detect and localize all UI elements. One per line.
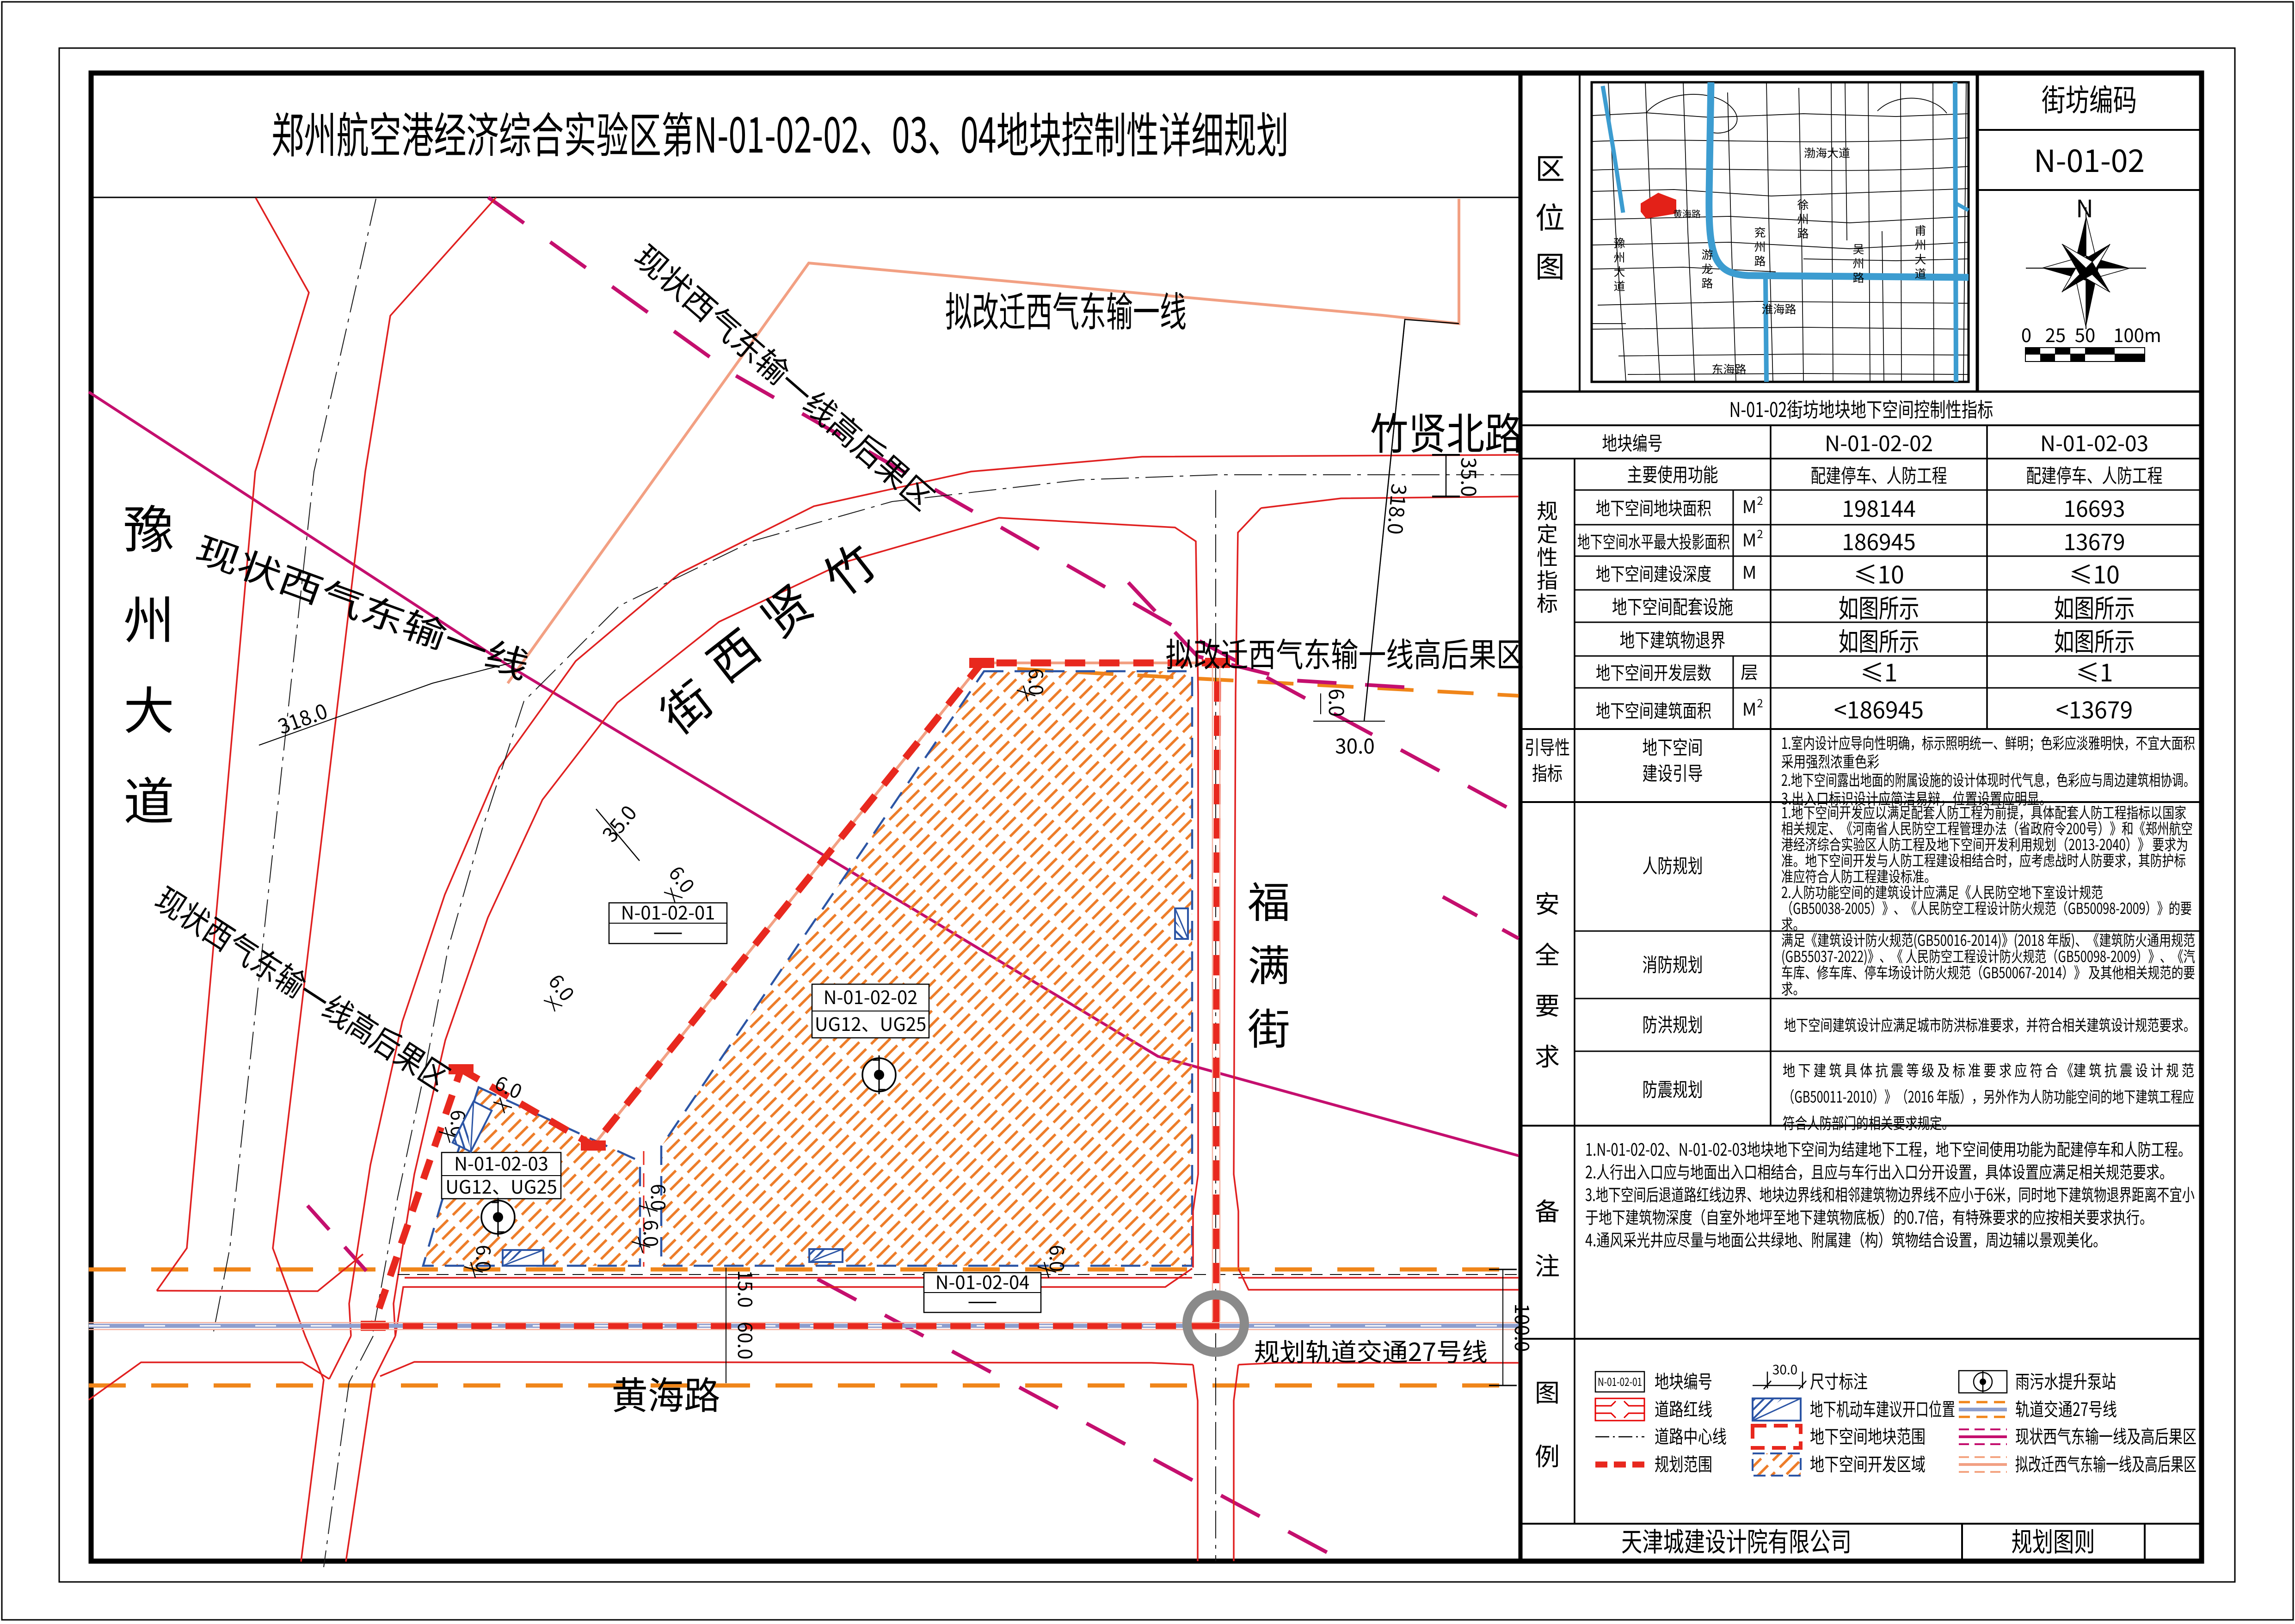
svg-text:如图所示: 如图所示 — [2054, 621, 2135, 659]
svg-text:东海路: 东海路 — [1711, 361, 1746, 377]
svg-text:≤10: ≤10 — [2069, 556, 2120, 590]
svg-text:路: 路 — [1852, 269, 1864, 286]
svg-text:街: 街 — [1248, 995, 1290, 1057]
svg-text:地下空间建设深度: 地下空间建设深度 — [1596, 559, 1711, 586]
svg-text:配建停车、人防工程: 配建停车、人防工程 — [1811, 460, 1947, 489]
svg-text:消防规划: 消防规划 — [1643, 950, 1703, 978]
svg-text:淮海路: 淮海路 — [1761, 300, 1796, 317]
svg-text:注: 注 — [1535, 1246, 1560, 1282]
svg-text:现状西气东输一线及高后果区: 现状西气东输一线及高后果区 — [2015, 1422, 2197, 1449]
svg-text:318.0: 318.0 — [1381, 483, 1415, 536]
svg-text:路: 路 — [1754, 252, 1766, 269]
svg-text:198144: 198144 — [1842, 491, 1916, 523]
svg-text:州: 州 — [123, 579, 174, 653]
svg-text:3.地下空间后退道路红线边界、地块边界线和相邻建筑物边界线不: 3.地下空间后退道路红线边界、地块边界线和相邻建筑物边界线不应小于6米，同时地下… — [1585, 1181, 2195, 1206]
svg-text:（GB50038-2005）》、《人民防空工程设计防火规范（: （GB50038-2005）》、《人民防空工程设计防火规范（GB50098-20… — [1781, 896, 2192, 919]
svg-text:求。: 求。 — [1781, 977, 1805, 999]
svg-text:拟改迁西气东输一线: 拟改迁西气东输一线 — [945, 280, 1187, 338]
svg-text:黄海路: 黄海路 — [1673, 207, 1701, 220]
svg-text:标: 标 — [1537, 587, 1558, 618]
svg-text:规划范围: 规划范围 — [1655, 1450, 1712, 1477]
svg-text:指标: 指标 — [1532, 758, 1563, 786]
svg-text:求: 求 — [1535, 1036, 1560, 1073]
svg-text:UG12、UG25: UG12、UG25 — [445, 1172, 557, 1199]
svg-text:M: M — [1742, 695, 1757, 721]
svg-text:雨污水提升泵站: 雨污水提升泵站 — [2015, 1367, 2116, 1394]
svg-text:道: 道 — [1914, 265, 1926, 282]
svg-text:满: 满 — [1248, 932, 1290, 993]
svg-text:≤1: ≤1 — [2076, 654, 2113, 688]
svg-text:配建停车、人防工程: 配建停车、人防工程 — [2026, 460, 2163, 489]
svg-text:0: 0 — [2021, 321, 2031, 348]
svg-text:25: 25 — [2045, 321, 2066, 348]
svg-text:于地下建筑物深度（自室外地坪至地下建筑物底板）的0.7倍，有: 于地下建筑物深度（自室外地坪至地下建筑物底板）的0.7倍，有特殊要求的应按相关要… — [1585, 1204, 2153, 1229]
svg-text:6.0: 6.0 — [1323, 688, 1353, 717]
svg-text:郑州航空港经济综合实验区第N-01-02-02、03、04地: 郑州航空港经济综合实验区第N-01-02-02、03、04地块控制性详细规划 — [271, 97, 1289, 166]
svg-text:地块编号: 地块编号 — [1655, 1367, 1712, 1394]
svg-text:N-01-02街坊地块地下空间控制性指标: N-01-02街坊地块地下空间控制性指标 — [1729, 393, 1994, 423]
svg-text:轨道交通27号线: 轨道交通27号线 — [2015, 1395, 2117, 1422]
svg-text:如图所示: 如图所示 — [2054, 588, 2135, 625]
svg-text:拟改迁西气东输一线及高后果区: 拟改迁西气东输一线及高后果区 — [2015, 1450, 2197, 1477]
svg-text:地下空间水平最大投影面积: 地下空间水平最大投影面积 — [1577, 528, 1730, 553]
svg-text:N-01-02-01: N-01-02-01 — [621, 898, 715, 925]
svg-text:规划轨道交通27号线: 规划轨道交通27号线 — [1254, 1332, 1488, 1368]
svg-text:黄海路: 黄海路 — [612, 1365, 720, 1420]
svg-text:50: 50 — [2075, 321, 2095, 348]
svg-text:道路中心线: 道路中心线 — [1655, 1422, 1727, 1449]
svg-text:要: 要 — [1535, 986, 1560, 1022]
svg-text:如图所示: 如图所示 — [1839, 621, 1920, 659]
svg-text:UG12、UG25: UG12、UG25 — [815, 1010, 927, 1036]
svg-text:N: N — [2076, 190, 2093, 224]
svg-text:30.0: 30.0 — [1772, 1360, 1797, 1379]
svg-text:道路红线: 道路红线 — [1655, 1395, 1712, 1422]
svg-text:4.通风采光井应尽量与地面公共绿地、附属建（构）筑物结合设置: 4.通风采光井应尽量与地面公共绿地、附属建（构）筑物结合设置，周边辅以景观美化。 — [1585, 1226, 2106, 1251]
svg-text:地下空间地块范围: 地下空间地块范围 — [1810, 1422, 1926, 1449]
svg-text:6.0: 6.0 — [470, 1245, 498, 1272]
svg-text:N-01-02-03: N-01-02-03 — [2040, 427, 2148, 458]
svg-text:2: 2 — [1757, 492, 1763, 508]
svg-text:30.0: 30.0 — [1335, 730, 1375, 760]
svg-text:防震规划: 防震规划 — [1643, 1074, 1703, 1103]
svg-text:60.0: 60.0 — [732, 1322, 760, 1360]
svg-text:100m: 100m — [2113, 321, 2161, 348]
svg-text:图: 图 — [1535, 1373, 1560, 1409]
svg-text:<186945: <186945 — [1834, 692, 1924, 725]
svg-text:地 下 建 筑 具 体 抗 震 等 级 及 标 准 要 求: 地 下 建 筑 具 体 抗 震 等 级 及 标 准 要 求 应 符 合 《建 筑… — [1783, 1058, 2194, 1081]
svg-text:2: 2 — [1757, 694, 1763, 711]
svg-text:M: M — [1742, 558, 1757, 584]
svg-text:M: M — [1742, 526, 1757, 552]
svg-text:2.人行出入口应与地面出入口相结合，且应与车行出入口分开设置: 2.人行出入口应与地面出入口相结合，且应与车行出入口分开设置，具体设置应满足相关… — [1585, 1158, 2173, 1183]
svg-text:备: 备 — [1535, 1191, 1560, 1228]
svg-text:竹贤北路: 竹贤北路 — [1370, 399, 1523, 462]
svg-text:位: 位 — [1535, 195, 1565, 237]
svg-text:地下空间开发层数: 地下空间开发层数 — [1596, 658, 1711, 685]
svg-text:引导性: 引导性 — [1525, 732, 1570, 760]
svg-text:防洪规划: 防洪规划 — [1643, 1010, 1703, 1038]
svg-text:大: 大 — [123, 670, 174, 744]
svg-text:车库、修车库、停车场设计防火规范（GB50067-2014）: 车库、修车库、停车场设计防火规范（GB50067-2014）》 及其他相关规范的… — [1781, 961, 2195, 983]
svg-text:层: 层 — [1741, 658, 1758, 684]
svg-text:35.0: 35.0 — [1455, 457, 1485, 497]
svg-text:6.0: 6.0 — [1023, 668, 1051, 695]
svg-text:6.0: 6.0 — [1044, 1245, 1072, 1272]
svg-text:M: M — [1742, 493, 1757, 518]
svg-text:13679: 13679 — [2063, 524, 2125, 557]
svg-text:≤1: ≤1 — [1860, 654, 1898, 688]
svg-text:地下空间建筑面积: 地下空间建筑面积 — [1596, 696, 1711, 723]
svg-text:地块编号: 地块编号 — [1602, 428, 1663, 456]
svg-text:路: 路 — [1797, 225, 1809, 241]
svg-text:全: 全 — [1535, 935, 1560, 971]
svg-text:N-01-02-01: N-01-02-01 — [1598, 1373, 1642, 1389]
svg-text:地下空间: 地下空间 — [1643, 732, 1703, 760]
svg-text:如图所示: 如图所示 — [1839, 588, 1920, 625]
svg-text:6.0: 6.0 — [638, 1220, 666, 1247]
svg-text:地下空间建筑设计应满足城市防洪标准要求，并符合相关建筑设计规: 地下空间建筑设计应满足城市防洪标准要求，并符合相关建筑设计规范要求。 — [1784, 1013, 2196, 1036]
svg-text:2: 2 — [1757, 525, 1763, 541]
svg-text:规划图则: 规划图则 — [2012, 1520, 2095, 1559]
svg-text:安: 安 — [1535, 884, 1560, 920]
svg-text:100.0: 100.0 — [1509, 1304, 1537, 1352]
svg-text:例: 例 — [1535, 1436, 1560, 1473]
svg-text:天津城建设计院有限公司: 天津城建设计院有限公司 — [1621, 1520, 1852, 1559]
svg-text:建设引导: 建设引导 — [1643, 758, 1703, 786]
svg-text:福: 福 — [1248, 869, 1290, 930]
svg-text:N-01-02: N-01-02 — [2034, 137, 2145, 181]
svg-text:道: 道 — [123, 760, 174, 834]
svg-text:图: 图 — [1535, 244, 1565, 286]
svg-text:（GB50011-2010）》（2016 年版），另外作为人: （GB50011-2010）》（2016 年版），另外作为人防功能空间的地下建筑… — [1783, 1085, 2194, 1107]
svg-text:≤10: ≤10 — [1853, 556, 1904, 590]
svg-text:N-01-02-02: N-01-02-02 — [824, 983, 918, 1010]
svg-text:1.N-01-02-02、N-01-02-03地块地下空间为: 1.N-01-02-02、N-01-02-03地块地下空间为结建地下工程，地下空… — [1585, 1136, 2191, 1161]
svg-text:186945: 186945 — [1842, 524, 1916, 557]
svg-text:16693: 16693 — [2063, 491, 2125, 523]
svg-text:区: 区 — [1535, 146, 1565, 188]
svg-text:符合人防部门的相关要求规定。: 符合人防部门的相关要求规定。 — [1783, 1111, 1954, 1134]
svg-text:15.0: 15.0 — [732, 1270, 760, 1308]
svg-text:主要使用功能: 主要使用功能 — [1627, 460, 1718, 488]
svg-text:6.0: 6.0 — [645, 1184, 673, 1211]
svg-text:道: 道 — [1613, 277, 1625, 294]
svg-text:渤海大道: 渤海大道 — [1804, 144, 1850, 161]
svg-text:N-01-02-04: N-01-02-04 — [935, 1268, 1030, 1295]
svg-text:人防规划: 人防规划 — [1643, 851, 1703, 879]
svg-text:豫: 豫 — [123, 489, 174, 563]
svg-text:地下空间开发区域: 地下空间开发区域 — [1810, 1450, 1926, 1477]
svg-text:路: 路 — [1701, 275, 1713, 291]
svg-text:拟改迁西气东输一线高后果区: 拟改迁西气东输一线高后果区 — [1166, 628, 1524, 676]
svg-text:地下建筑物退界: 地下建筑物退界 — [1620, 625, 1726, 653]
svg-text:地下空间地块面积: 地下空间地块面积 — [1596, 494, 1711, 521]
svg-text:地下空间配套设施: 地下空间配套设施 — [1612, 592, 1733, 620]
svg-text:<13679: <13679 — [2056, 692, 2133, 725]
svg-text:N-01-02-02: N-01-02-02 — [1825, 427, 1933, 458]
svg-text:尺寸标注: 尺寸标注 — [1810, 1367, 1868, 1394]
svg-text:街坊编码: 街坊编码 — [2042, 76, 2137, 120]
svg-text:地下机动车建议开口位置: 地下机动车建议开口位置 — [1810, 1395, 1955, 1422]
